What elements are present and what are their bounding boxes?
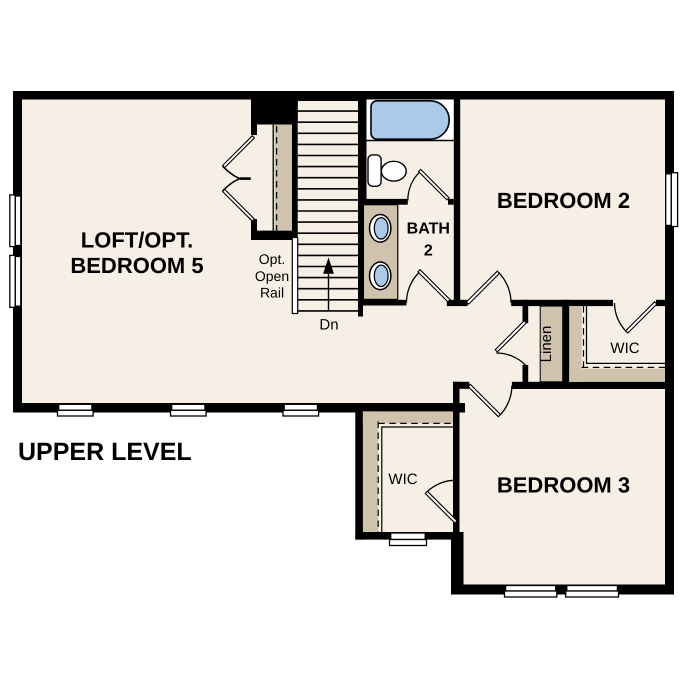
svg-text:Open: Open [255,268,289,284]
svg-text:WIC: WIC [388,471,417,488]
svg-text:BEDROOM 5: BEDROOM 5 [70,253,203,278]
svg-text:UPPER LEVEL: UPPER LEVEL [18,438,192,466]
svg-text:2: 2 [424,243,433,260]
svg-text:Rail: Rail [260,285,284,301]
svg-text:BEDROOM 2: BEDROOM 2 [497,188,630,213]
svg-text:Linen: Linen [538,326,555,363]
svg-text:WIC: WIC [610,340,639,357]
svg-text:BEDROOM 3: BEDROOM 3 [497,473,630,498]
svg-text:BATH: BATH [407,221,450,238]
svg-text:LOFT/OPT.: LOFT/OPT. [81,228,193,253]
svg-text:Opt.: Opt. [259,251,285,267]
svg-text:Dn: Dn [319,317,338,334]
